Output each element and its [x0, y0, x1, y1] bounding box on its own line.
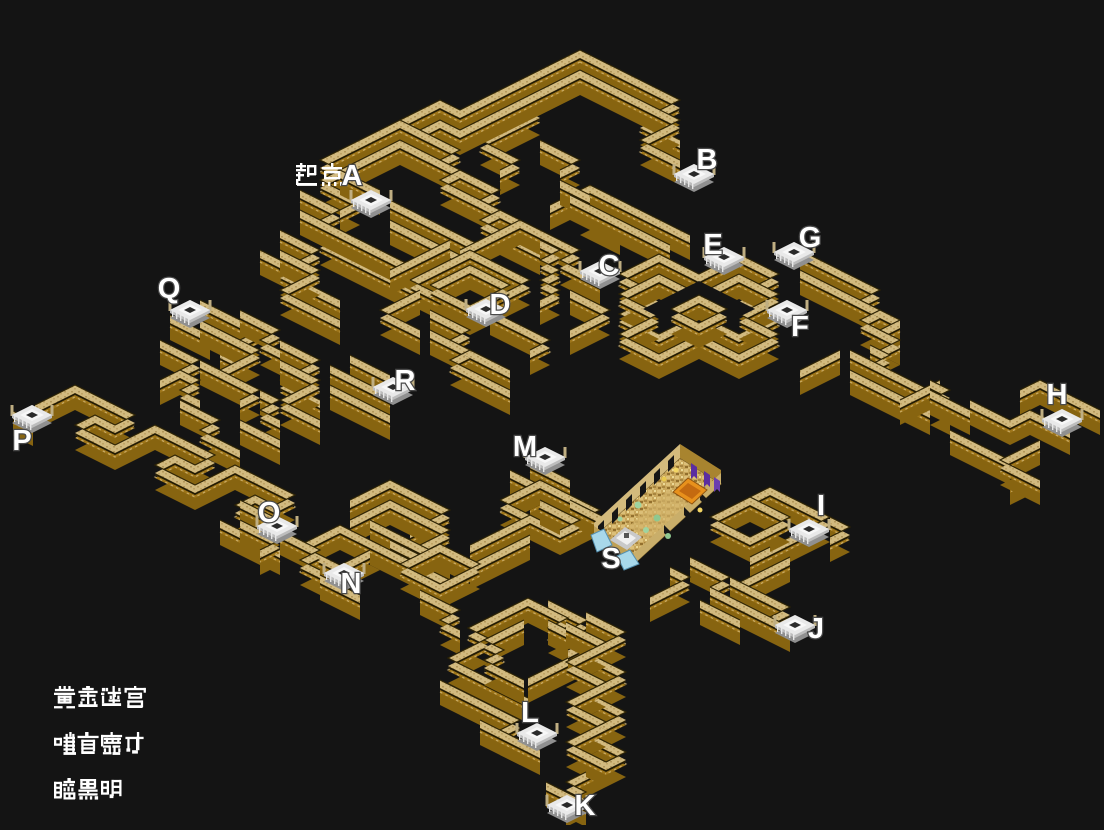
svg-text:H: H — [1047, 379, 1068, 411]
svg-text:A: A — [342, 160, 363, 192]
svg-text:C: C — [599, 250, 620, 282]
svg-text:Q: Q — [158, 273, 181, 305]
svg-text:K: K — [575, 790, 596, 822]
svg-text:N: N — [341, 568, 362, 600]
svg-text:D: D — [490, 289, 511, 321]
svg-text:O: O — [258, 497, 281, 529]
svg-text:M: M — [513, 431, 537, 463]
svg-text:R: R — [395, 365, 416, 397]
svg-text:L: L — [521, 697, 539, 729]
svg-text:B: B — [697, 144, 718, 176]
svg-text:P: P — [12, 425, 31, 457]
svg-text:E: E — [703, 229, 722, 261]
svg-text:I: I — [817, 490, 825, 522]
svg-text:G: G — [799, 222, 822, 254]
svg-text:F: F — [791, 311, 809, 343]
svg-text:J: J — [808, 613, 824, 645]
svg-text:S: S — [601, 543, 620, 575]
